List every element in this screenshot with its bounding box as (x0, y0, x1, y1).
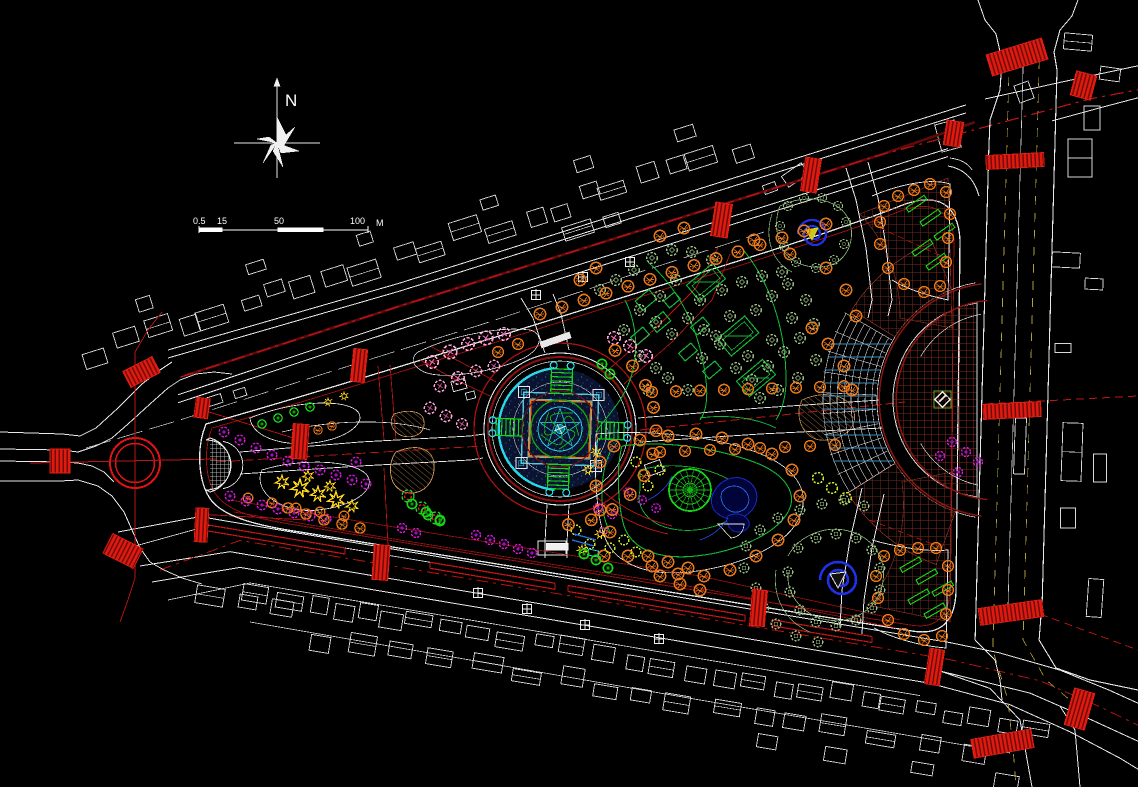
svg-text:N: N (285, 91, 297, 110)
svg-text:15: 15 (217, 216, 227, 226)
svg-text:0.5: 0.5 (193, 216, 206, 226)
svg-text:100: 100 (350, 216, 365, 226)
svg-text:50: 50 (274, 216, 284, 226)
svg-text:M: M (376, 218, 384, 228)
